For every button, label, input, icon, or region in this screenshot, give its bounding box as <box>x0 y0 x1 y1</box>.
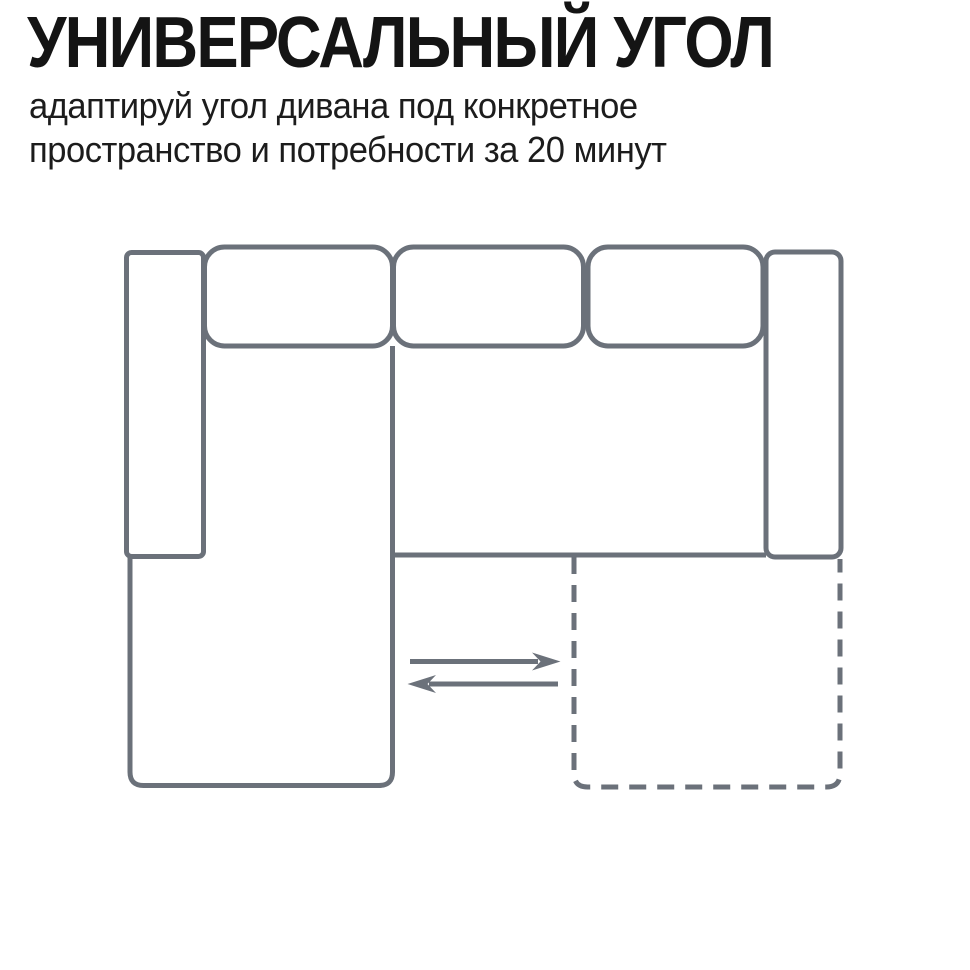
back-cushion-right <box>588 247 763 346</box>
sofa-poster: УНИВЕРСАЛЬНЫЙ УГОЛ адаптируй угол дивана… <box>0 0 970 970</box>
slide-arrows <box>408 653 561 694</box>
back-cushion-middle <box>394 247 584 346</box>
target-position-dashed-outline <box>574 557 840 787</box>
sofa-top-view-diagram <box>0 0 970 970</box>
chaise-module-outline <box>130 346 393 786</box>
right-armrest <box>766 252 841 557</box>
sofa-outline-group <box>127 247 842 787</box>
left-armrest <box>127 253 204 557</box>
back-cushion-left <box>205 247 393 346</box>
